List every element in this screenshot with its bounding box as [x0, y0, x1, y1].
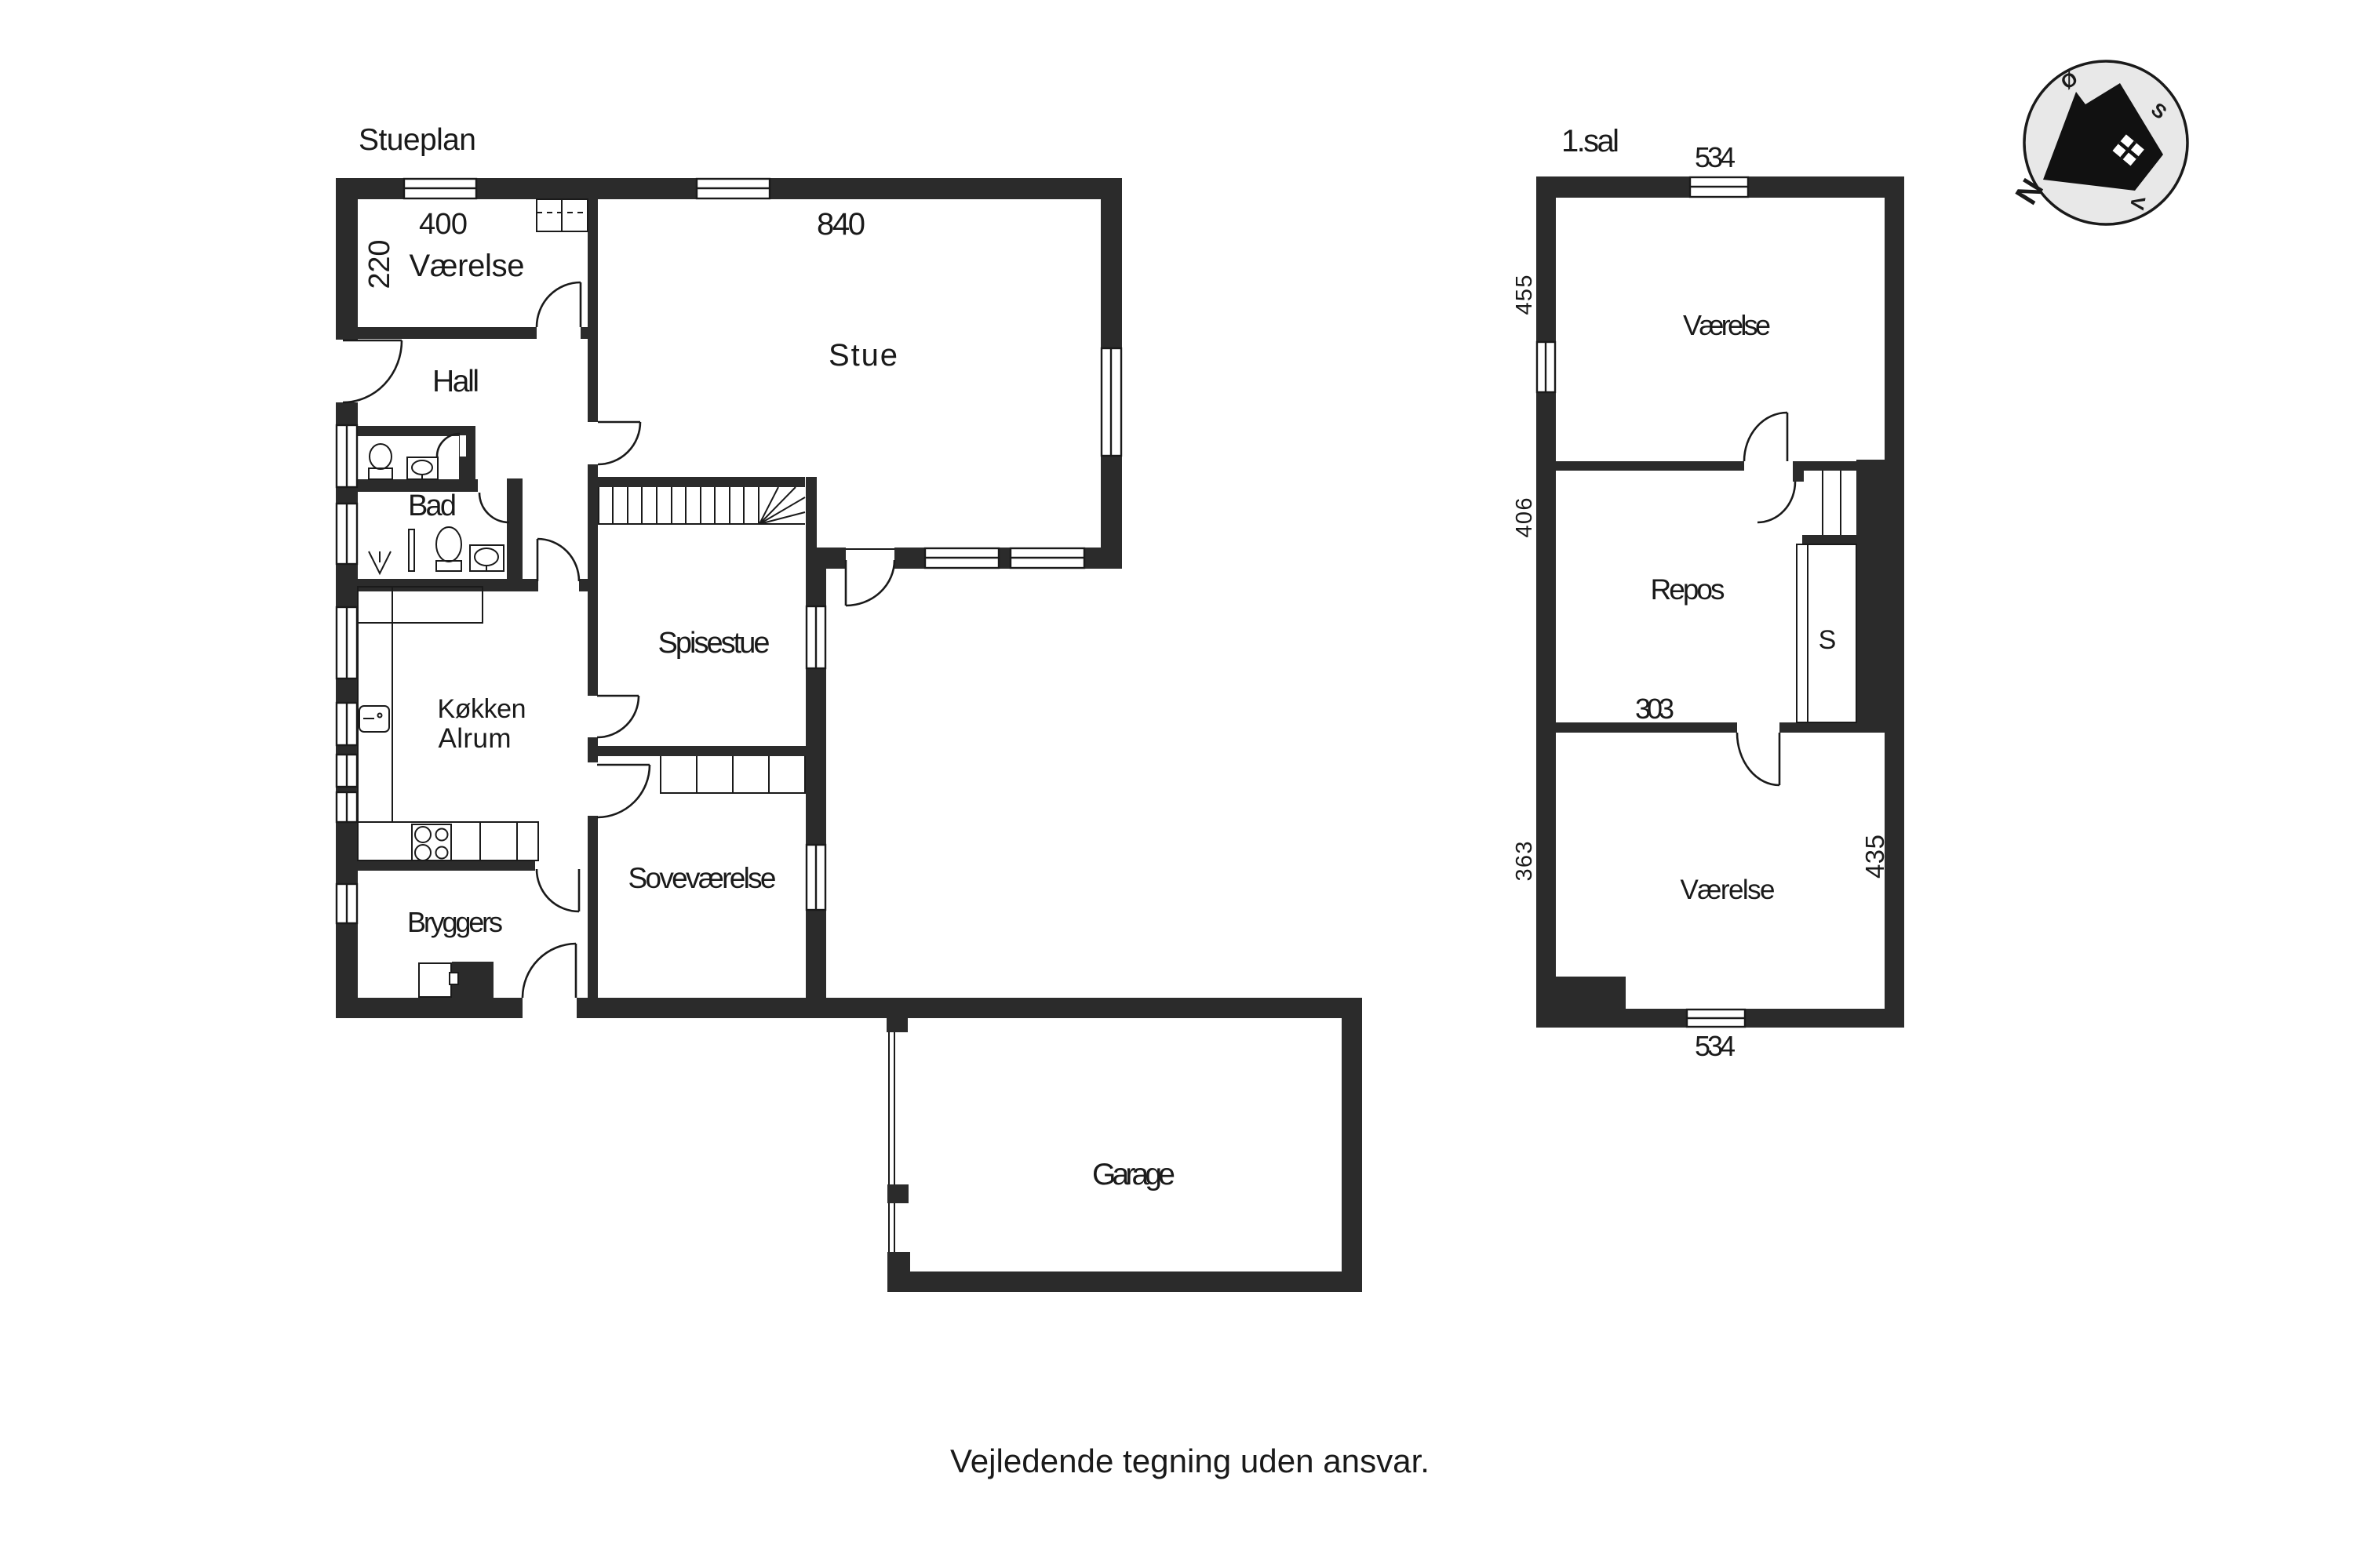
svg-text:455: 455 — [1512, 275, 1537, 315]
svg-text:1.sal: 1.sal — [1561, 124, 1619, 158]
svg-text:Stueplan: Stueplan — [359, 123, 476, 157]
svg-text:Værelse: Værelse — [1681, 875, 1776, 905]
svg-text:Garage: Garage — [1092, 1158, 1175, 1191]
svg-text:Bryggers: Bryggers — [407, 906, 503, 938]
svg-text:220: 220 — [363, 240, 396, 289]
svg-text:Spisestue: Spisestue — [658, 627, 770, 660]
svg-text:363: 363 — [1512, 842, 1537, 882]
svg-text:Soveværelse: Soveværelse — [628, 862, 777, 894]
svg-text:840: 840 — [817, 207, 865, 242]
svg-text:303: 303 — [1635, 693, 1674, 725]
svg-text:Værelse: Værelse — [1683, 309, 1771, 341]
svg-text:406: 406 — [1512, 498, 1537, 538]
svg-text:534: 534 — [1695, 141, 1736, 173]
svg-text:Stue: Stue — [829, 338, 898, 373]
svg-text:Værelse: Værelse — [410, 249, 525, 283]
svg-text:S: S — [1819, 625, 1837, 655]
svg-text:Alrum: Alrum — [439, 723, 512, 754]
svg-text:Bad: Bad — [408, 489, 457, 522]
svg-text:400: 400 — [419, 208, 468, 241]
svg-text:Hall: Hall — [432, 365, 479, 398]
svg-text:Vejledende tegning uden ansvar: Vejledende tegning uden ansvar. — [950, 1442, 1430, 1479]
svg-text:Repos: Repos — [1651, 573, 1725, 606]
svg-text:534: 534 — [1695, 1030, 1736, 1062]
svg-text:435: 435 — [1860, 835, 1889, 879]
svg-text:Køkken: Køkken — [438, 694, 526, 724]
